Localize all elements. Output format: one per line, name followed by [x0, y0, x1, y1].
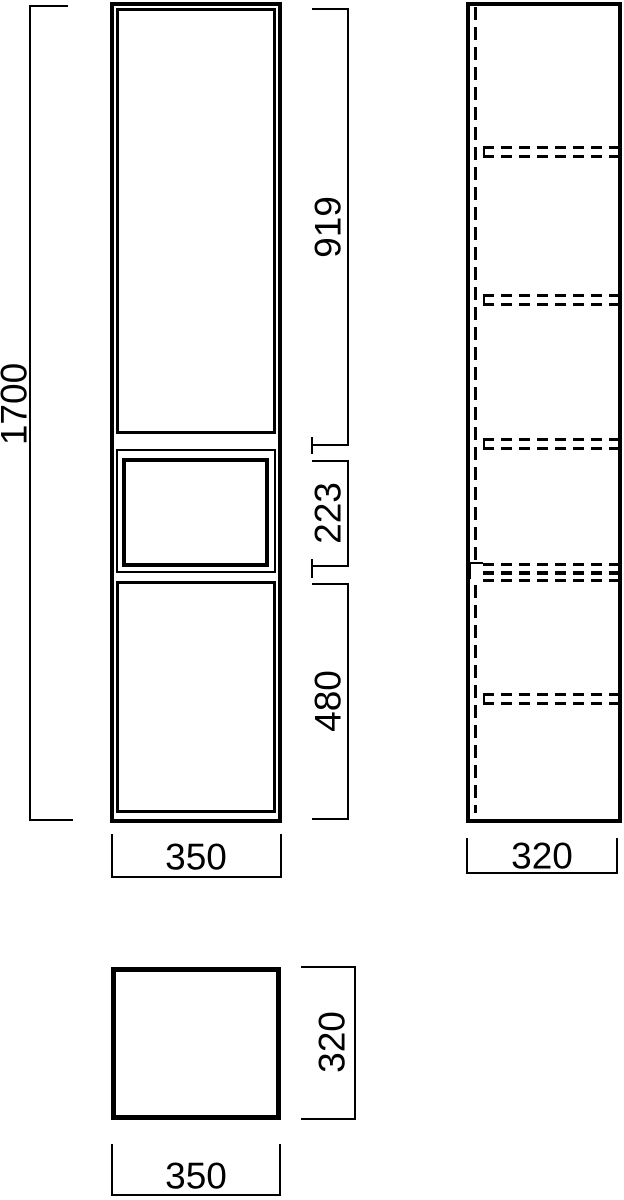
dim-223-tick-top — [312, 460, 349, 462]
side-shelf2-cap — [483, 294, 485, 306]
dim-1700-tick-top — [29, 5, 68, 7]
side-shelf4-hook-vertical — [469, 562, 471, 579]
side-shelf2-dashed-top — [483, 294, 620, 297]
side-shelf5-dashed-top — [483, 693, 620, 696]
dim-side-320-tick-right — [616, 838, 618, 874]
side-shelf1-dashed-bottom — [483, 155, 620, 158]
dim-label-lower-door-height: 480 — [310, 670, 347, 732]
drawing-canvas: 1700 919 223 480 350 320 — [0, 0, 624, 1200]
side-shelf3-cap — [483, 438, 485, 450]
dim-480-tick-bottom — [312, 818, 349, 820]
front-niche-opening — [122, 458, 269, 567]
dim-label-top-width: 350 — [165, 1158, 227, 1195]
dim-label-top-depth: 320 — [314, 1011, 351, 1073]
side-shelf1-cap — [483, 146, 485, 158]
dim-223-tick-bottom — [312, 565, 349, 567]
dim-1700-tick-bottom — [29, 819, 73, 821]
dim-480-tick-top — [312, 583, 349, 585]
side-door-edge-dashed-lower — [474, 585, 477, 813]
dim-label-front-width: 350 — [165, 839, 227, 876]
dim-top-320-line — [354, 966, 356, 1120]
dim-top-350-tick-left — [111, 1144, 113, 1196]
dim-top-350-tick-right — [279, 1144, 281, 1196]
side-view-outline — [466, 2, 622, 823]
side-shelf1-dashed-top — [483, 146, 620, 149]
dim-label-niche-height: 223 — [310, 482, 347, 544]
side-shelf2-dashed-bottom — [483, 303, 620, 306]
top-view-outline — [111, 967, 281, 1120]
side-door-edge-dashed-upper — [474, 7, 477, 560]
side-shelf4-hook-horizontal — [469, 562, 483, 564]
dim-side-320-tick-left — [466, 838, 468, 874]
side-shelf4-dashed-bottom — [483, 579, 620, 582]
side-shelf4-dashed-middle-thick — [483, 571, 620, 575]
side-shelf3-dashed-bottom — [483, 447, 620, 450]
dim-top-320-tick-top — [301, 966, 356, 968]
side-shelf3-dashed-top — [483, 438, 620, 441]
dim-919-223-extension-stub — [311, 437, 313, 454]
side-shelf5-cap — [483, 693, 485, 705]
dim-front-350-tick-right — [280, 834, 282, 878]
dim-front-350-tick-left — [111, 834, 113, 878]
dim-top-320-tick-bottom — [301, 1118, 356, 1120]
side-shelf4-dashed-top — [483, 563, 620, 566]
dim-label-overall-height: 1700 — [0, 363, 33, 445]
dim-919-tick-bottom — [312, 444, 349, 446]
front-lower-door — [116, 581, 276, 813]
dim-label-upper-door-height: 919 — [310, 196, 347, 258]
dim-label-side-depth: 320 — [511, 838, 573, 875]
dim-223-480-extension-stub — [311, 559, 313, 578]
side-shelf5-dashed-bottom — [483, 702, 620, 705]
front-upper-door — [116, 8, 276, 434]
dim-919-tick-top — [312, 8, 349, 10]
